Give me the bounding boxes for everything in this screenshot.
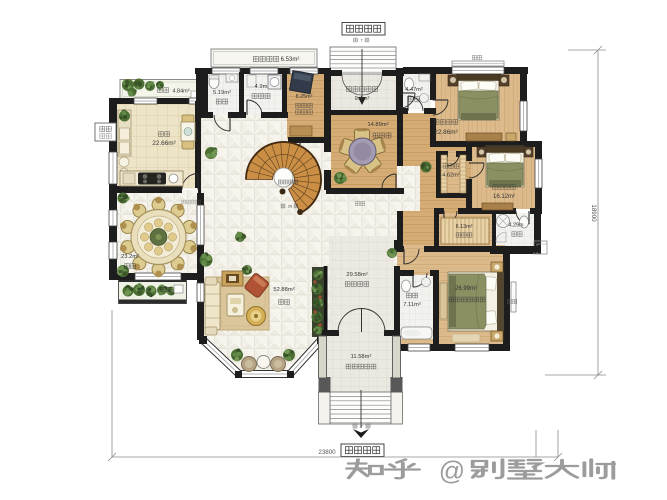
svg-text:22.66m²: 22.66m²: [152, 140, 175, 147]
svg-text:5.19m²: 5.19m²: [213, 90, 231, 96]
svg-text:26.99m²: 26.99m²: [455, 286, 477, 292]
svg-text:4.47m²: 4.47m²: [405, 87, 423, 93]
svg-text:6.53m²: 6.53m²: [281, 57, 300, 63]
svg-text:11.58m²: 11.58m²: [351, 354, 372, 360]
svg-text:18900: 18900: [590, 204, 597, 222]
svg-text:23800: 23800: [318, 449, 336, 456]
svg-text:22.86m²: 22.86m²: [434, 129, 457, 136]
svg-text:29.58m²: 29.58m²: [346, 272, 367, 278]
svg-text:4.62m²: 4.62m²: [442, 173, 460, 179]
svg-text:4.9m: 4.9m: [255, 84, 268, 90]
svg-text:@: @: [439, 456, 465, 486]
svg-text:4.84m²: 4.84m²: [172, 88, 189, 94]
svg-text:14.89m²: 14.89m²: [367, 122, 388, 128]
svg-text:52.88m²: 52.88m²: [273, 287, 294, 293]
svg-text:9.4m²: 9.4m²: [355, 96, 370, 102]
svg-text:6.13m²: 6.13m²: [456, 224, 473, 230]
svg-text:23.2m²: 23.2m²: [121, 254, 139, 260]
svg-text:16.12m²: 16.12m²: [493, 194, 515, 200]
svg-text:7.11m²: 7.11m²: [403, 302, 421, 308]
svg-text:8.25m²: 8.25m²: [296, 94, 313, 100]
svg-text:4.29m: 4.29m: [509, 223, 524, 229]
svg-text:26: 26: [288, 204, 293, 209]
